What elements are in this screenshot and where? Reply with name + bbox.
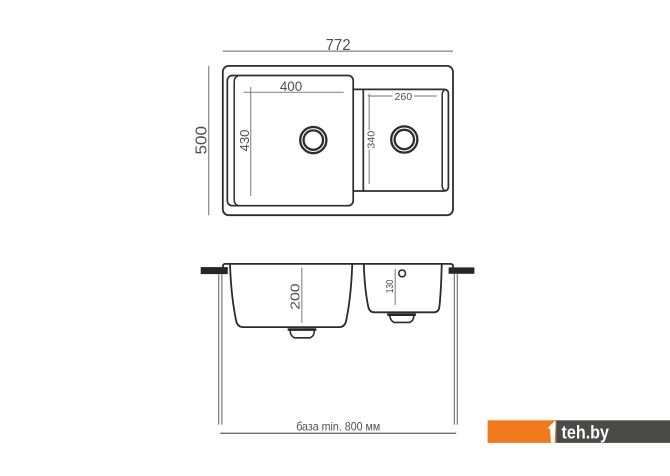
- svg-text:130: 130: [384, 280, 396, 294]
- svg-text:400: 400: [280, 79, 302, 94]
- svg-text:340: 340: [366, 131, 378, 149]
- svg-text:500: 500: [193, 126, 210, 155]
- svg-text:teh.by: teh.by: [562, 423, 610, 443]
- svg-text:260: 260: [395, 91, 413, 103]
- svg-text:772: 772: [326, 37, 351, 54]
- svg-text:430: 430: [237, 130, 252, 152]
- svg-text:200: 200: [288, 283, 303, 309]
- svg-text:база min. 800 мм: база min. 800 мм: [296, 420, 380, 434]
